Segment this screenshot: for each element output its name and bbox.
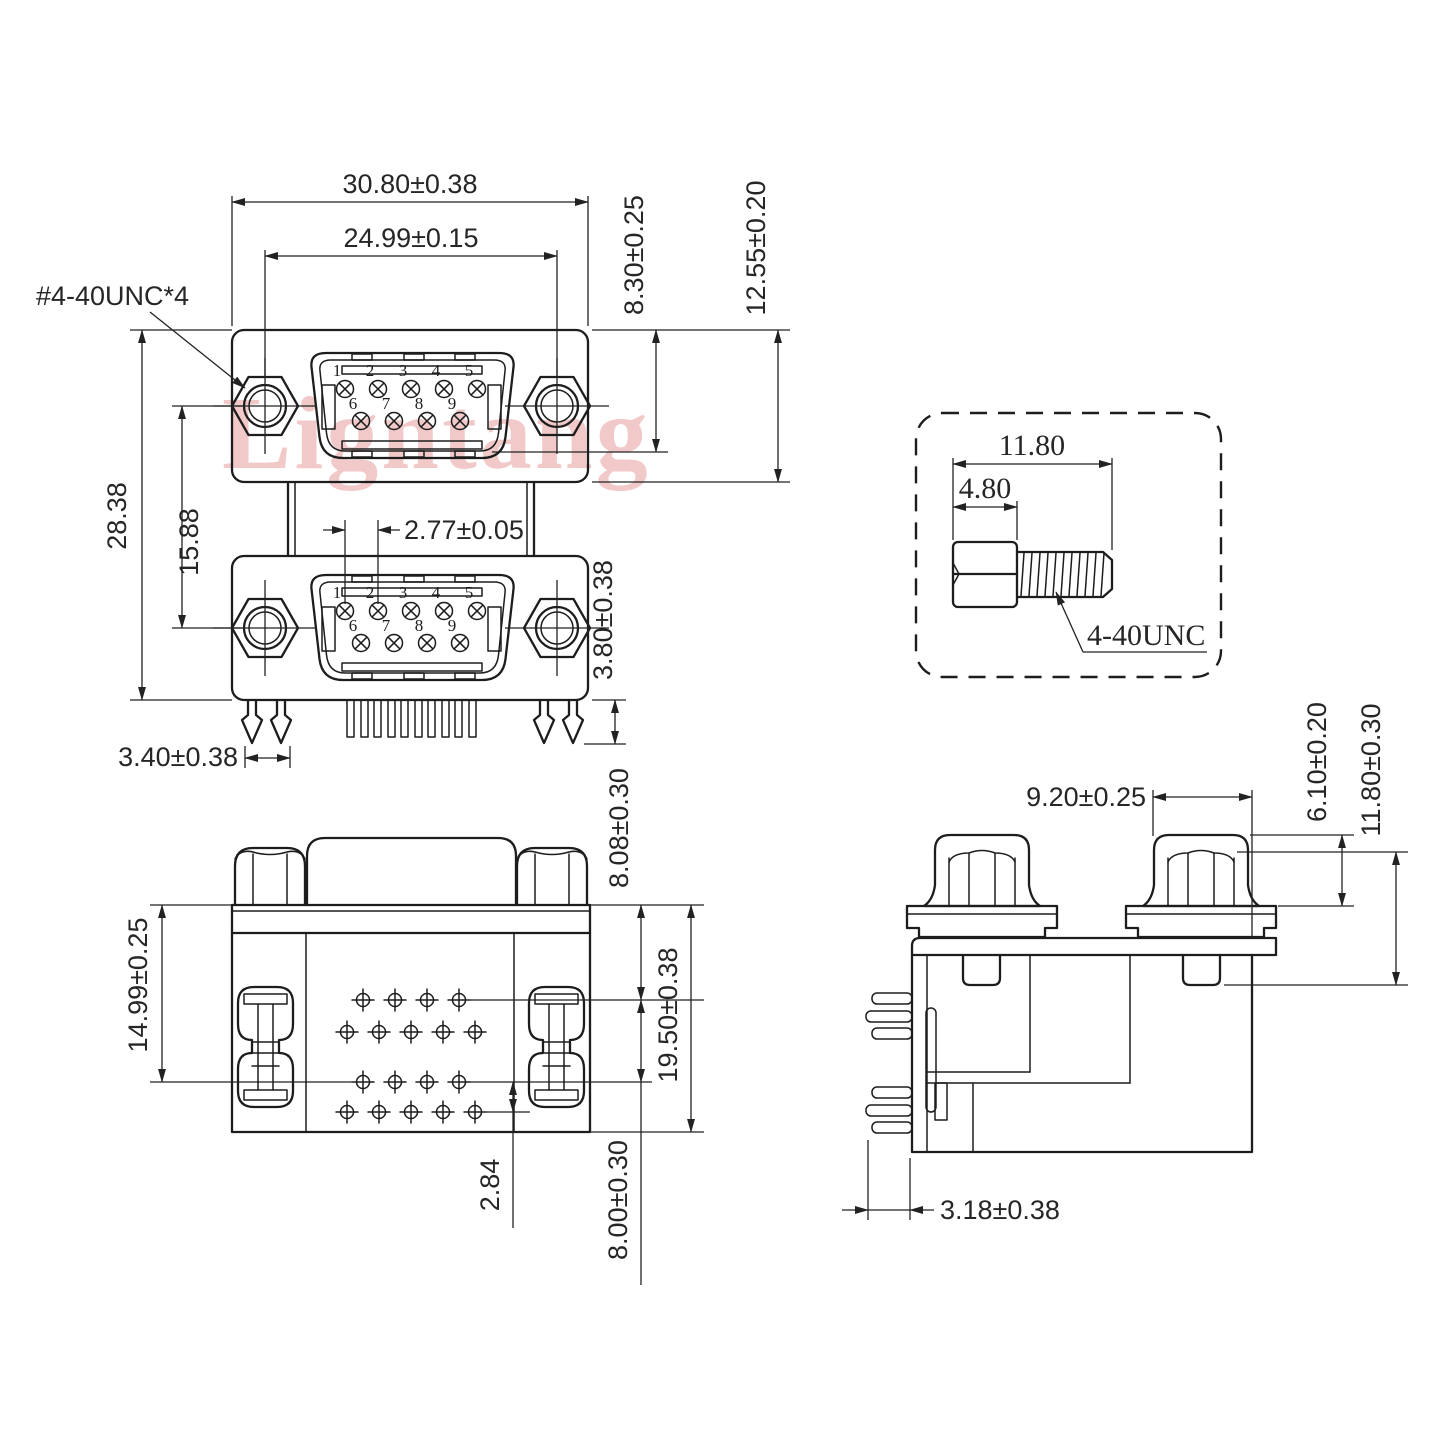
drawing-canvas: 1 2 3 4 5 6 7 8 9 <box>0 0 1440 1440</box>
dim-flange-to-bottom: 19.50±0.38 <box>653 948 683 1083</box>
jack-screw-drawing <box>953 542 1112 607</box>
pin-grid <box>336 989 486 1123</box>
screw-thread-label: 4-40UNC <box>1087 619 1205 652</box>
front-boardlocks-and-pins <box>242 700 583 743</box>
screw-detail-dimensions: 11.80 4.80 4-40UNC <box>953 429 1207 652</box>
dim-boardlock-width: 3.40±0.38 <box>118 742 238 772</box>
bottom-view: 14.99±0.25 8.08±0.30 8.00±0.30 19.50±0.3… <box>123 768 704 1285</box>
dim-shell-to-flange-top: 8.30±0.25 <box>619 195 649 315</box>
dim-overall-width: 30.80±0.38 <box>343 169 478 199</box>
dim-solder-pin-length: 3.80±0.38 <box>588 560 618 680</box>
side-view-pins <box>866 993 912 1133</box>
screw-detail-view: 11.80 4.80 4-40UNC <box>916 413 1221 677</box>
lower-port-shell <box>213 575 609 680</box>
right-screw-tail <box>1183 955 1220 985</box>
dim-port-center-spacing: 15.88 <box>174 508 204 576</box>
screw-thread-callout: #4-40UNC*4 <box>36 281 189 311</box>
connector-drawing-page: 1 2 3 4 5 6 7 8 9 <box>0 0 1440 1440</box>
dim-nut-height: 6.10±0.20 <box>1302 702 1332 822</box>
dim-standoff-length: 11.80±0.30 <box>1356 704 1386 837</box>
left-screw-tail <box>963 955 1000 985</box>
dim-flange-height: 12.55±0.20 <box>741 181 771 316</box>
dim-screw-overall-length: 11.80 <box>999 429 1065 462</box>
dim-row-pitch: 2.84 <box>475 1159 505 1212</box>
dim-overall-height: 28.38 <box>102 482 132 550</box>
dim-pin-pitch: 2.77±0.05 <box>404 515 524 545</box>
dim-pin-to-face: 3.18±0.38 <box>940 1195 1060 1225</box>
dim-flange-to-row3: 14.99±0.25 <box>123 918 153 1053</box>
dim-bracket-depth: 9.20±0.25 <box>1026 782 1146 812</box>
dim-row-offset: 8.00±0.30 <box>603 1140 633 1260</box>
side-view: 9.20±0.25 6.10±0.20 11.80±0.30 3.18±0.38 <box>842 702 1408 1225</box>
dim-screw-head-length: 4.80 <box>959 472 1012 505</box>
dim-mount-hole-span: 24.99±0.15 <box>344 223 479 253</box>
dim-flange-to-row1: 8.08±0.30 <box>604 768 634 888</box>
shell-silhouette <box>307 838 516 905</box>
